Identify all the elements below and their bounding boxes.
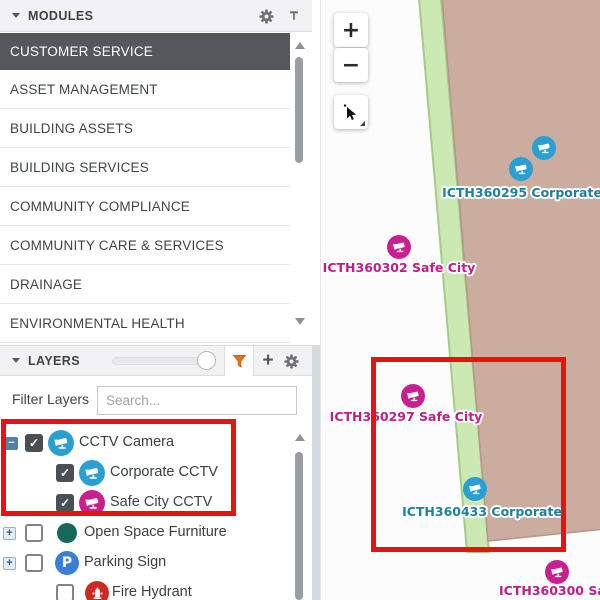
module-item-drainage[interactable]: DRAINAGE [0,265,290,304]
map-marker-safe-city[interactable] [387,235,411,259]
cursor-icon [342,103,360,121]
layers-settings-button[interactable] [283,353,299,369]
layer-filter-button[interactable] [224,346,254,376]
layer-label: Corporate CCTV [110,464,218,480]
select-tool-button[interactable] [334,95,368,129]
cctv-camera-icon [391,239,408,256]
panel-divider[interactable] [312,345,320,600]
zoom-out-button[interactable]: − [334,48,368,82]
collapse-triangle-icon[interactable] [12,358,20,363]
layer-checkbox[interactable] [25,524,43,542]
layer-row-corporate-cctv[interactable]: ✓ Corporate CCTV [0,458,290,488]
map-marker-corporate[interactable] [463,477,487,501]
layer-checkbox[interactable] [56,584,74,600]
module-item-building-assets[interactable]: BUILDING ASSETS [0,109,290,148]
slider-handle[interactable] [197,351,216,370]
cctv-camera-icon [536,140,553,157]
expand-group-toggle[interactable]: + [3,527,16,540]
cctv-camera-icon [549,564,566,581]
collapse-triangle-icon[interactable] [12,13,20,18]
modules-panel-header: MODULES [0,0,312,32]
module-item-community-care[interactable]: COMMUNITY CARE & SERVICES [0,226,290,265]
layer-label: Open Space Furniture [84,524,227,540]
map-label: ICTH360297 Safe City [330,409,483,424]
filter-layers-label: Filter Layers [12,391,89,407]
pin-icon [287,9,301,23]
layer-label: Fire Hydrant [112,584,192,600]
modules-settings-button[interactable] [258,8,274,24]
layers-scrollbar-thumb[interactable] [295,452,303,600]
expand-group-toggle[interactable]: + [3,557,16,570]
zoom-in-button[interactable]: + [334,13,368,47]
layer-row-fire-hydrant[interactable]: Fire Hydrant [0,578,290,600]
layer-checkbox[interactable]: ✓ [56,494,74,512]
map-marker-safe-city[interactable] [545,560,569,584]
module-item-asset-management[interactable]: ASSET MANAGEMENT [0,70,290,109]
map-marker-corporate[interactable] [509,157,533,181]
cctv-camera-icon [405,388,422,405]
cctv-camera-icon [513,161,530,178]
app-window: MODULES CUSTOMER SERVICE ASSET MANAGEMEN… [0,0,600,600]
layer-row-safe-city-cctv[interactable]: ✓ Safe City CCTV [0,488,290,518]
map-canvas[interactable]: + − ICTH360295 Corporate [320,0,600,600]
layers-panel-header: LAYERS + [0,345,312,376]
map-label: ICTH360300 Safe [499,583,600,598]
layer-checkbox[interactable]: ✓ [25,434,43,452]
layer-checkbox[interactable]: ✓ [56,464,74,482]
button-corner-expand [360,121,365,126]
modules-scrollbar-thumb[interactable] [295,57,303,163]
scroll-down-arrow-icon[interactable] [295,318,305,325]
module-item-building-services[interactable]: BUILDING SERVICES [0,148,290,187]
layer-filter-row: Filter Layers [0,377,312,425]
module-item-customer-service[interactable]: CUSTOMER SERVICE [0,33,290,70]
circle-icon [57,523,77,543]
cctv-camera-icon [79,490,105,516]
layer-row-parking-sign[interactable]: + P Parking Sign [0,548,290,578]
modules-scrollbar[interactable] [292,36,308,338]
scroll-up-arrow-icon[interactable] [295,42,305,49]
scroll-up-arrow-icon[interactable] [295,434,305,441]
parking-sign-icon: P [55,551,79,575]
cctv-camera-icon [467,481,484,498]
collapse-group-toggle[interactable]: − [5,437,18,450]
module-item-environmental-health[interactable]: ENVIRONMENTAL HEALTH [0,304,290,343]
add-layer-button[interactable]: + [258,347,278,375]
gear-icon [259,9,274,24]
fire-hydrant-icon [85,581,109,600]
map-label: ICTH360295 Corporate [442,185,600,200]
map-marker-safe-city[interactable] [401,384,425,408]
layers-scrollbar[interactable] [292,430,308,600]
modules-panel-title: MODULES [28,9,93,23]
layers-panel-title: LAYERS [28,354,80,368]
layer-row-open-space-furniture[interactable]: + Open Space Furniture [0,518,290,548]
map-label: ICTH360433 Corporate [402,504,562,519]
cctv-camera-icon [79,460,105,486]
map-marker-corporate[interactable] [532,136,556,160]
modules-pin-button[interactable] [286,8,302,24]
funnel-icon [232,354,247,369]
layer-label: CCTV Camera [79,434,174,450]
layer-search-input[interactable] [97,386,297,415]
module-item-community-compliance[interactable]: COMMUNITY COMPLIANCE [0,187,290,226]
layer-row-cctv-camera[interactable]: − ✓ CCTV Camera [0,428,290,458]
gear-icon [284,354,299,369]
layer-label: Safe City CCTV [110,494,212,510]
layer-label: Parking Sign [84,554,166,570]
cctv-camera-icon [48,430,74,456]
layer-checkbox[interactable] [25,554,43,572]
map-label: ICTH360302 Safe City [323,260,476,275]
